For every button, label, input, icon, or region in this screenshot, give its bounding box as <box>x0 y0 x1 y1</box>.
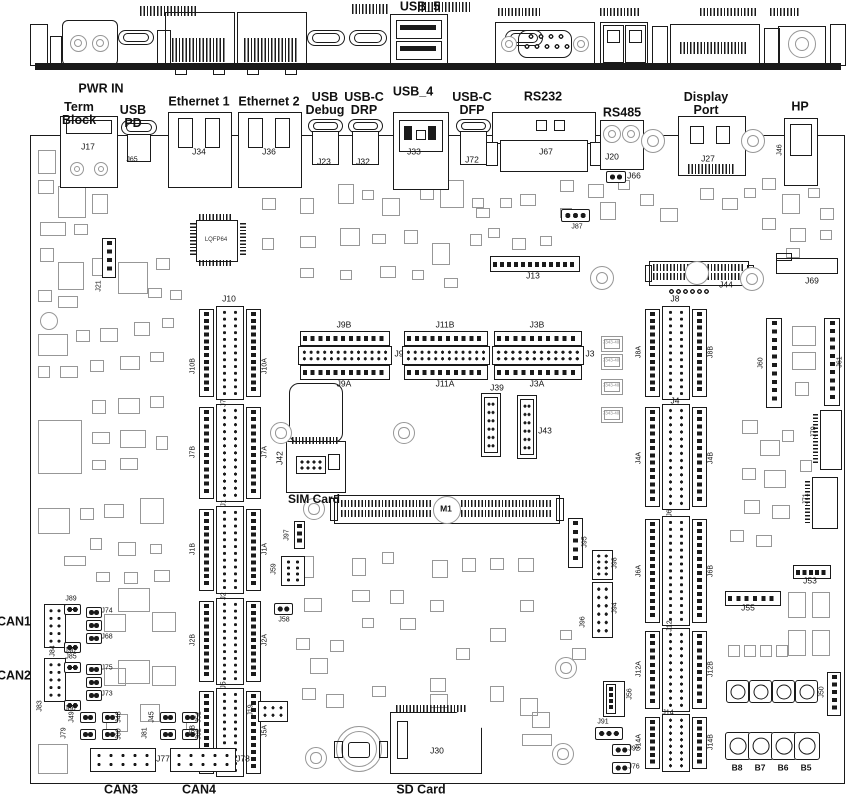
header-group-j10 <box>216 306 244 400</box>
pin-strip <box>461 500 553 507</box>
label-7343-40: 7343-40 <box>603 359 620 364</box>
part <box>652 26 668 65</box>
smd-part <box>150 544 162 554</box>
label-rs485: RS485 <box>603 107 641 120</box>
smd-part <box>120 458 138 470</box>
label-j8: J8 <box>671 295 680 304</box>
can3-header-j77 <box>90 748 156 772</box>
smd-part <box>430 600 444 612</box>
jumper-j87 <box>561 209 590 222</box>
label-j80: J80 <box>115 728 122 739</box>
label-j42: J42 <box>276 451 285 465</box>
label-j2a: J2A <box>261 634 268 646</box>
header-group-j1 <box>216 506 244 594</box>
label-j32: J32 <box>356 158 370 167</box>
edge-usbc <box>307 30 345 46</box>
label-hp: HP <box>791 101 808 114</box>
smd-part <box>300 268 314 278</box>
label-j87: J87 <box>571 223 582 230</box>
label-j66: J66 <box>627 172 641 181</box>
smd-part <box>520 194 536 206</box>
mounting-hole <box>555 657 577 679</box>
jumper-j89 <box>64 604 81 615</box>
header-group-j10 <box>246 309 261 397</box>
jumper-j68 <box>86 633 102 644</box>
label-j82: J82 <box>195 728 202 739</box>
label-j39: J39 <box>490 384 504 393</box>
smd-part <box>100 328 118 342</box>
label-j96: J96 <box>579 616 586 627</box>
smd-part <box>38 150 56 174</box>
pin-strip <box>600 8 640 16</box>
label-j1b: J1B <box>189 543 196 555</box>
smd-part <box>372 234 386 244</box>
label-j11a: J11A <box>436 380 455 389</box>
smd-part <box>38 334 68 356</box>
label-j4a: J4A <box>635 452 642 464</box>
pin-strip <box>352 4 388 14</box>
smd-part <box>744 500 760 514</box>
part <box>175 64 187 75</box>
label-j8b: J8B <box>707 346 714 358</box>
smd-part <box>140 498 164 524</box>
smd-part <box>744 188 756 198</box>
jumper-j73 <box>86 690 102 701</box>
pin-strip <box>498 8 542 16</box>
label-j89: J89 <box>65 595 76 602</box>
part <box>645 265 652 282</box>
mounting-hole <box>590 266 614 290</box>
label-j3b: J3B <box>530 321 545 330</box>
jumper-j58 <box>274 603 293 615</box>
label-can4: CAN4 <box>182 784 216 797</box>
label-j13: J13 <box>526 272 540 281</box>
label-display-port: Display Port <box>684 91 728 117</box>
label-j74: J74 <box>101 607 112 614</box>
pin-strip <box>461 510 553 517</box>
smd-part <box>722 198 738 210</box>
smd-part <box>38 508 70 534</box>
label-usb-debug: USB Debug <box>306 91 345 117</box>
smd-part <box>118 588 150 612</box>
part <box>776 253 792 261</box>
smd-part <box>744 645 756 657</box>
smd-part <box>40 248 54 262</box>
smd-part <box>490 686 504 702</box>
pin-header <box>86 620 102 631</box>
mounting-hole <box>552 743 574 765</box>
jumper-j79 <box>80 729 96 740</box>
label-j2b: J2B <box>189 634 196 646</box>
label-j49: J49 <box>68 711 75 722</box>
smd-part <box>790 228 806 242</box>
smd-part <box>362 190 374 200</box>
smd-part <box>156 258 170 270</box>
smd-part <box>80 508 94 520</box>
label-j58: J58 <box>278 616 289 623</box>
label-j97: J97 <box>283 529 290 540</box>
label-usb-c-drp: USB-C DRP <box>344 91 384 117</box>
smd-part <box>430 678 446 692</box>
mounting-hole <box>622 125 640 143</box>
sim-card-outline <box>289 383 343 443</box>
label-ethernet-1: Ethernet 1 <box>168 96 229 109</box>
header-group-j4 <box>692 407 707 507</box>
header-group-j9 <box>298 346 392 365</box>
label-j3a: J3A <box>530 380 545 389</box>
smd-part <box>352 558 366 576</box>
smd-part <box>490 628 506 642</box>
smd-part <box>262 238 274 250</box>
smd-part <box>512 238 526 250</box>
label-sim-card: SIM Card <box>288 493 340 505</box>
smd-part <box>310 658 328 674</box>
smd-part <box>390 590 404 604</box>
header-group-j4 <box>645 407 660 507</box>
label-j36: J36 <box>262 148 276 157</box>
smd-part <box>38 744 68 774</box>
label-j51: J51 <box>195 711 202 722</box>
label-usb-5: USB_5 <box>400 1 440 14</box>
smd-part <box>90 360 104 372</box>
jumper-j85 <box>64 662 81 673</box>
header-group-j7 <box>216 404 244 502</box>
label-j4: J4 <box>671 397 680 406</box>
part <box>328 454 340 470</box>
smd-part <box>170 290 182 300</box>
label-j12b: J12B <box>707 661 714 677</box>
header-j19 <box>258 701 288 722</box>
mounting-hole <box>94 162 108 176</box>
smd-part <box>154 570 170 582</box>
push-button <box>749 680 772 703</box>
label-lqfp64: LQFP64 <box>205 237 227 243</box>
smd-part <box>470 234 482 246</box>
smd-part <box>118 262 148 294</box>
can1-header-j84 <box>44 604 66 648</box>
label-pwr-in: PWR IN <box>78 83 123 96</box>
smd-part <box>560 630 572 640</box>
header-j50 <box>827 672 841 716</box>
smd-part <box>472 198 484 208</box>
smd-part <box>432 560 448 578</box>
pin-strip <box>770 8 800 16</box>
smd-part <box>500 198 512 208</box>
pin-header <box>606 684 616 714</box>
smd-part <box>40 222 66 236</box>
pin-strip <box>341 500 433 507</box>
label-j72: J72 <box>465 156 479 165</box>
header-group-j8 <box>645 309 660 397</box>
can4-header-j78 <box>170 748 236 772</box>
part <box>404 126 412 140</box>
label-j65: J65 <box>126 156 137 163</box>
label-j17: J17 <box>81 143 95 152</box>
smd-part <box>340 270 352 280</box>
circle-part <box>40 312 58 330</box>
pin-strip <box>292 437 338 444</box>
label-j67: J67 <box>539 148 553 157</box>
part <box>247 64 259 75</box>
smd-part <box>38 366 50 378</box>
label-j98: J98 <box>611 557 618 568</box>
smd-part <box>600 202 616 220</box>
pin-strip <box>244 38 298 62</box>
smd-part <box>152 666 176 686</box>
label-j73: J73 <box>101 690 112 697</box>
label-j21: J21 <box>95 280 102 291</box>
smd-part <box>362 618 374 628</box>
header-group-j1 <box>246 509 261 591</box>
header-j21 <box>102 238 116 278</box>
header-group-j2 <box>199 601 214 682</box>
jumper-j45 <box>160 712 176 723</box>
label-j95: J95 <box>581 536 588 547</box>
label-j46: J46 <box>776 144 783 155</box>
smd-part <box>352 590 370 602</box>
pin-strip <box>813 414 818 464</box>
smd-part <box>58 296 78 308</box>
label-j9: J9 <box>395 350 404 359</box>
label-j8a: J8A <box>635 346 642 358</box>
smd-part <box>150 352 164 362</box>
label-j78: J78 <box>236 755 250 764</box>
smd-part <box>762 218 776 230</box>
smd-part <box>296 638 310 650</box>
label-j14: J14 <box>662 709 673 716</box>
mounting-hole <box>70 35 87 52</box>
smd-part <box>792 352 816 370</box>
header-j97 <box>294 521 305 549</box>
pin-header <box>296 456 326 474</box>
mounting-hole <box>740 267 764 291</box>
header-j98 <box>592 550 613 580</box>
smd-part <box>326 694 344 708</box>
label-j81: J81 <box>141 727 148 738</box>
pin-strip <box>341 510 433 517</box>
button-b5 <box>794 732 820 760</box>
smd-part <box>380 266 396 278</box>
smd-part <box>772 505 790 519</box>
smd-part <box>162 318 174 328</box>
label-j77: J77 <box>156 755 170 764</box>
label-j43: J43 <box>538 427 552 436</box>
part <box>690 126 704 144</box>
smd-part <box>700 188 714 200</box>
smd-part <box>520 600 534 612</box>
label-j91: J91 <box>597 718 608 725</box>
header-group-j2 <box>216 598 244 685</box>
smd-part <box>462 558 476 572</box>
label-j92: J92 <box>628 745 639 752</box>
pin-row <box>522 43 572 50</box>
pin-strip <box>199 214 233 220</box>
smd-part <box>262 198 276 210</box>
label-j71: J71 <box>802 493 809 504</box>
header-group-j12 <box>662 628 690 712</box>
edge-usbc <box>118 30 154 45</box>
part <box>248 118 263 148</box>
connector-j70 <box>820 410 842 470</box>
label-j53: J53 <box>803 577 817 586</box>
pin-strip <box>199 260 233 266</box>
label-j20: J20 <box>605 153 619 162</box>
label-j68: J68 <box>101 633 112 640</box>
header-j94-j96 <box>592 582 613 638</box>
label-rs232: RS232 <box>524 91 562 104</box>
label-b5: B5 <box>801 764 812 773</box>
label-7343-40: 7343-40 <box>603 341 620 346</box>
push-button <box>726 680 749 703</box>
label-b8: B8 <box>732 764 743 773</box>
header-group-j11 <box>404 331 488 346</box>
smd-part <box>90 538 102 550</box>
smd-part <box>58 262 84 290</box>
smd-part <box>742 468 756 480</box>
smd-part <box>820 230 832 240</box>
mounting-hole <box>741 129 765 153</box>
part <box>556 498 564 521</box>
part <box>416 130 426 140</box>
label-j55: J55 <box>741 604 755 613</box>
smd-part <box>488 228 500 238</box>
mounting-hole <box>788 30 816 58</box>
header-group-j6 <box>645 519 660 623</box>
header-j59 <box>281 556 305 586</box>
part <box>607 30 620 43</box>
label-can2: CAN2 <box>0 670 31 683</box>
mounting-hole <box>501 36 517 52</box>
part <box>178 118 193 148</box>
label-j69: J69 <box>805 277 819 286</box>
label-j7b: J7B <box>189 446 196 458</box>
jumper-j74 <box>86 607 102 618</box>
header-group-j6 <box>692 519 707 623</box>
push-button <box>772 680 795 703</box>
label-j6a: J6A <box>635 565 642 577</box>
label-can3: CAN3 <box>104 784 138 797</box>
smd-part <box>372 686 386 697</box>
pin-header <box>484 397 498 453</box>
label-usb-4: USB_4 <box>393 86 433 99</box>
header-group-j9 <box>300 331 390 346</box>
smd-part <box>756 535 772 547</box>
label-j1a: J1A <box>261 543 268 555</box>
smd-part <box>104 614 126 632</box>
header-group-j12 <box>645 631 660 709</box>
smd-part <box>38 420 82 474</box>
header-group-j4 <box>662 404 690 510</box>
smd-part <box>560 180 574 192</box>
pin-strip <box>172 38 226 62</box>
pin-header <box>520 399 534 455</box>
smd-part <box>148 288 162 298</box>
label-j19: J19 <box>247 704 254 715</box>
smd-part <box>38 290 52 302</box>
header-group-j2 <box>246 601 261 682</box>
label-j14b: J14B <box>707 734 714 750</box>
label-j34: J34 <box>192 148 206 157</box>
jumper-j66 <box>606 171 626 183</box>
smd-part <box>444 278 458 288</box>
part <box>486 142 498 166</box>
label-j9a: J9A <box>337 380 352 389</box>
smd-part <box>92 460 106 470</box>
label-j7a: J7A <box>261 446 268 458</box>
label-j12: J12 <box>666 620 673 631</box>
label-j9b: J9B <box>337 321 352 330</box>
pin-header <box>86 677 102 688</box>
label-j60: J60 <box>757 357 764 368</box>
label-j61: J61 <box>836 356 843 367</box>
mounting-hole <box>393 422 415 444</box>
header-group-j8 <box>692 309 707 397</box>
label-j94: J94 <box>611 602 618 613</box>
part <box>275 118 290 148</box>
label-j10a: J10A <box>261 358 268 374</box>
can2-header-j83 <box>44 658 66 702</box>
part <box>790 124 812 156</box>
part <box>348 742 370 758</box>
smd-part <box>730 530 744 542</box>
smd-part <box>476 208 490 218</box>
smd-part <box>382 198 400 216</box>
push-button <box>795 680 818 703</box>
part <box>536 120 547 131</box>
smd-part <box>60 366 78 378</box>
label-j56: J56 <box>626 688 633 699</box>
smd-part <box>400 618 416 630</box>
header-group-j10 <box>199 309 214 397</box>
smd-part <box>300 236 316 248</box>
smd-part <box>742 420 758 434</box>
smd-part <box>300 198 314 214</box>
smd-part <box>120 356 140 370</box>
pin-strip <box>688 164 734 174</box>
label-j30: J30 <box>430 747 444 756</box>
smd-part <box>588 184 604 198</box>
smd-part <box>302 688 316 700</box>
label-j45: J45 <box>148 711 155 722</box>
label-usb-c-dfp: USB-C DFP <box>452 91 492 117</box>
part <box>334 741 343 758</box>
mounting-hole <box>641 129 665 153</box>
label-j27: J27 <box>701 155 715 164</box>
label-b7: B7 <box>755 764 766 773</box>
header-group-j3 <box>494 331 582 346</box>
label-j33: J33 <box>407 148 421 157</box>
pin-strip <box>700 8 756 16</box>
jumper-j91 <box>595 727 623 740</box>
smd-part <box>304 598 322 612</box>
header-j13 <box>490 256 580 272</box>
label-j5: J5 <box>220 681 227 688</box>
header-group-j3 <box>492 346 584 365</box>
header-group-j14 <box>692 717 707 769</box>
smd-part <box>92 400 106 414</box>
mounting-hole <box>573 36 589 52</box>
part <box>554 120 565 131</box>
label-m1: M1 <box>440 505 452 514</box>
circle-part <box>685 261 709 285</box>
smd-part <box>64 556 86 566</box>
label-j10b: J10B <box>189 358 196 374</box>
label-7343-40: 7343-40 <box>603 384 620 389</box>
smd-part <box>788 630 806 656</box>
pin-row <box>526 33 566 40</box>
smd-part <box>96 572 110 582</box>
edge-bracket-left <box>30 24 48 66</box>
